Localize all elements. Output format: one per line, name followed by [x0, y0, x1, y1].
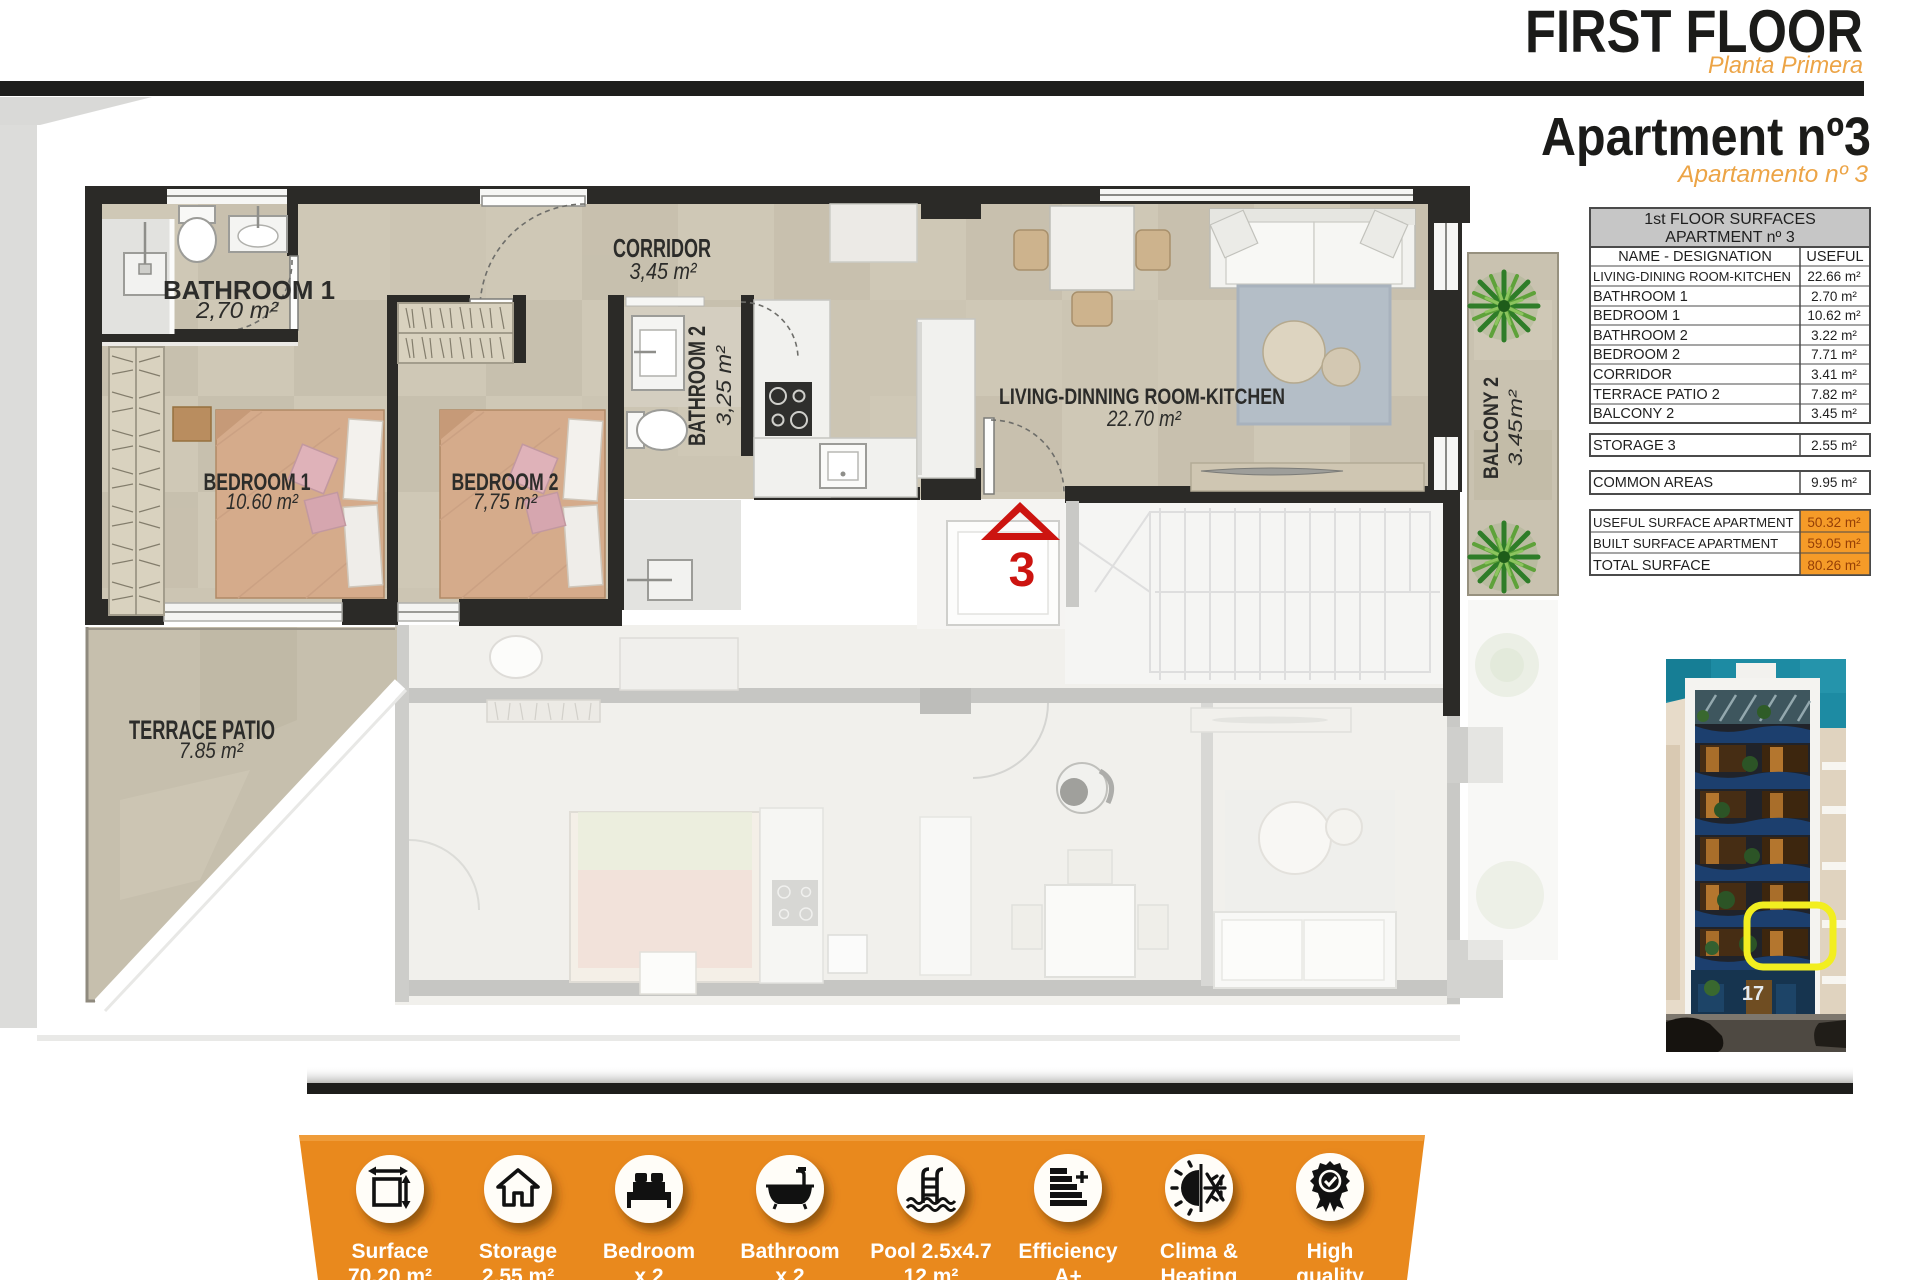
svg-text:10.62 m²: 10.62 m² — [1807, 308, 1861, 323]
svg-text:17: 17 — [1742, 983, 1764, 1005]
svg-text:APARTMENT nº 3: APARTMENT nº 3 — [1665, 229, 1795, 246]
svg-text:LIVING-DINING ROOM-KITCHEN: LIVING-DINING ROOM-KITCHEN — [1593, 269, 1791, 284]
svg-text:7,75 m²: 7,75 m² — [473, 489, 538, 514]
svg-text:COMMON AREAS: COMMON AREAS — [1593, 475, 1713, 491]
svg-text:1st FLOOR SURFACES: 1st FLOOR SURFACES — [1644, 211, 1816, 228]
svg-text:70.20 m²: 70.20 m² — [348, 1265, 432, 1280]
svg-text:3.41 m²: 3.41 m² — [1811, 367, 1857, 382]
svg-text:x 2: x 2 — [775, 1265, 804, 1280]
svg-text:BATHROOM 2: BATHROOM 2 — [684, 326, 711, 446]
svg-text:3.22 m²: 3.22 m² — [1811, 328, 1857, 343]
svg-text:TERRACE PATIO 2: TERRACE PATIO 2 — [1593, 387, 1720, 403]
svg-text:3,45 m²: 3,45 m² — [630, 258, 698, 284]
svg-text:9.95 m²: 9.95 m² — [1811, 475, 1857, 490]
svg-text:BALCONY 2: BALCONY 2 — [1593, 406, 1674, 422]
svg-text:2.55 m²: 2.55 m² — [482, 1265, 554, 1280]
svg-text:2,70 m²: 2,70 m² — [195, 297, 279, 323]
svg-text:10.60 m²: 10.60 m² — [226, 489, 299, 514]
svg-text:quality: quality — [1296, 1265, 1364, 1280]
svg-text:7.82 m²: 7.82 m² — [1811, 387, 1857, 402]
svg-text:3.45 m²: 3.45 m² — [1506, 389, 1527, 466]
svg-text:BATHROOM 2: BATHROOM 2 — [1593, 328, 1688, 344]
svg-text:Efficiency: Efficiency — [1018, 1240, 1118, 1263]
svg-text:NAME - DESIGNATION: NAME - DESIGNATION — [1618, 249, 1772, 265]
svg-text:7.85 m²: 7.85 m² — [179, 738, 244, 763]
svg-text:Apartment nº3: Apartment nº3 — [1541, 107, 1871, 167]
svg-text:STORAGE 3: STORAGE 3 — [1593, 438, 1676, 454]
svg-text:BATHROOM 1: BATHROOM 1 — [1593, 289, 1688, 305]
svg-text:BALCONY 2: BALCONY 2 — [1480, 377, 1503, 479]
svg-text:Planta Primera: Planta Primera — [1708, 52, 1863, 79]
svg-text:BUILT SURFACE APARTMENT: BUILT SURFACE APARTMENT — [1593, 536, 1778, 551]
svg-text:2.70 m²: 2.70 m² — [1811, 289, 1857, 304]
svg-text:USEFUL SURFACE APARTMENT: USEFUL SURFACE APARTMENT — [1593, 515, 1794, 530]
svg-text:Bathroom: Bathroom — [740, 1240, 839, 1263]
svg-text:Clima &: Clima & — [1160, 1240, 1238, 1263]
svg-text:2.55 m²: 2.55 m² — [1811, 438, 1857, 453]
svg-text:3,25 m²: 3,25 m² — [713, 345, 736, 426]
svg-text:22.66 m²: 22.66 m² — [1807, 269, 1861, 284]
svg-text:Bedroom: Bedroom — [603, 1240, 695, 1263]
svg-text:BEDROOM 1: BEDROOM 1 — [1593, 308, 1680, 324]
svg-text:50.32 m²: 50.32 m² — [1807, 515, 1861, 530]
svg-text:3.45 m²: 3.45 m² — [1811, 406, 1857, 421]
svg-text:x 2: x 2 — [634, 1265, 663, 1280]
svg-text:Pool 2.5x4.7: Pool 2.5x4.7 — [870, 1240, 991, 1263]
svg-text:59.05 m²: 59.05 m² — [1807, 536, 1861, 551]
svg-text:USEFUL: USEFUL — [1806, 249, 1863, 265]
svg-text:Apartamento nº 3: Apartamento nº 3 — [1676, 161, 1869, 188]
svg-text:Surface: Surface — [351, 1240, 428, 1263]
svg-text:12 m²: 12 m² — [904, 1265, 959, 1280]
svg-text:BEDROOM 2: BEDROOM 2 — [1593, 347, 1680, 363]
svg-text:3: 3 — [1009, 544, 1036, 597]
svg-text:22.70 m²: 22.70 m² — [1106, 406, 1181, 431]
svg-text:TOTAL SURFACE: TOTAL SURFACE — [1593, 558, 1711, 574]
svg-text:Heating: Heating — [1160, 1265, 1237, 1280]
svg-text:Storage: Storage — [479, 1240, 557, 1263]
svg-text:CORRIDOR: CORRIDOR — [1593, 367, 1672, 383]
svg-text:A+: A+ — [1054, 1265, 1081, 1280]
svg-text:High: High — [1307, 1240, 1354, 1263]
svg-text:7.71 m²: 7.71 m² — [1811, 347, 1857, 362]
svg-text:80.26 m²: 80.26 m² — [1807, 558, 1861, 573]
